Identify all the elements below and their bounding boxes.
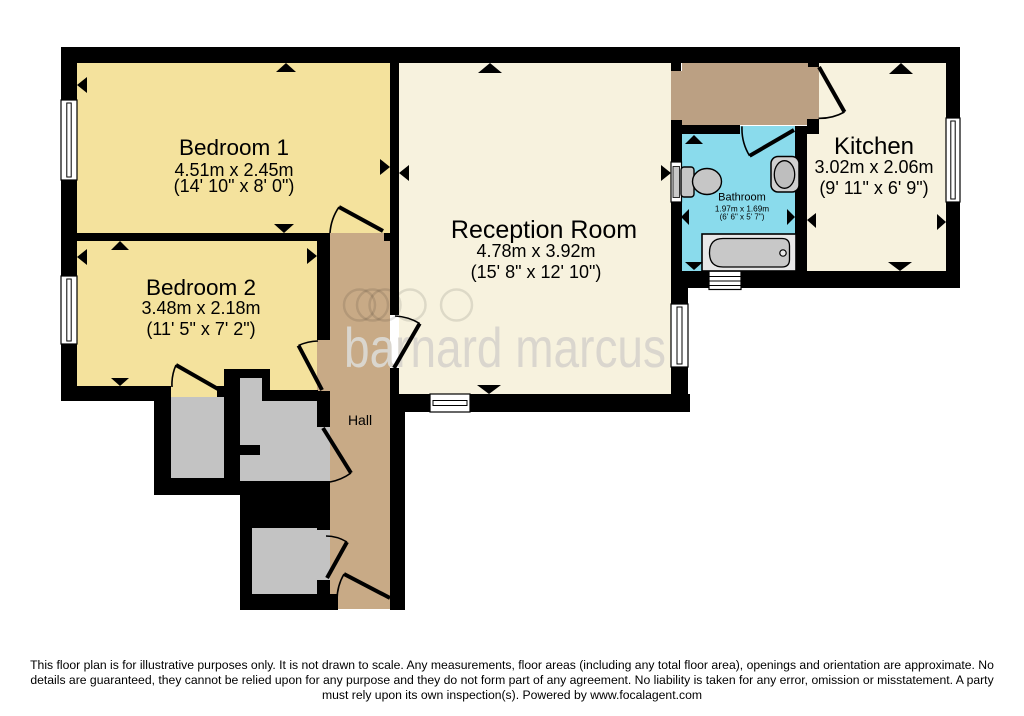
svg-text:details are guaranteed, they c: details are guaranteed, they cannot be r…	[30, 673, 994, 687]
svg-text:(11' 5" x 7' 2"): (11' 5" x 7' 2")	[146, 319, 255, 339]
svg-text:Reception Room: Reception Room	[451, 216, 637, 244]
svg-text:3.48m x 2.18m: 3.48m x 2.18m	[141, 298, 260, 318]
svg-text:must rely upon its own inspect: must rely upon its own inspection(s). Po…	[322, 688, 702, 702]
svg-text:Bedroom 2: Bedroom 2	[146, 275, 256, 300]
svg-text:This floor plan is for illustr: This floor plan is for illustrative purp…	[30, 658, 994, 672]
svg-text:Bedroom 1: Bedroom 1	[179, 135, 289, 160]
svg-text:Hall: Hall	[348, 412, 372, 428]
svg-text:(14' 10" x 8' 0"): (14' 10" x 8' 0")	[174, 176, 295, 196]
svg-text:3.02m x 2.06m: 3.02m x 2.06m	[814, 157, 933, 177]
svg-text:4.78m x 3.92m: 4.78m x 3.92m	[476, 241, 595, 261]
svg-text:(6' 6" x 5' 7"): (6' 6" x 5' 7")	[720, 213, 765, 222]
svg-text:(15' 8" x 12' 10"): (15' 8" x 12' 10")	[471, 262, 602, 282]
svg-text:(9' 11" x 6' 9"): (9' 11" x 6' 9")	[819, 178, 928, 198]
svg-text:Bathroom: Bathroom	[718, 192, 766, 204]
svg-text:Kitchen: Kitchen	[834, 133, 914, 160]
